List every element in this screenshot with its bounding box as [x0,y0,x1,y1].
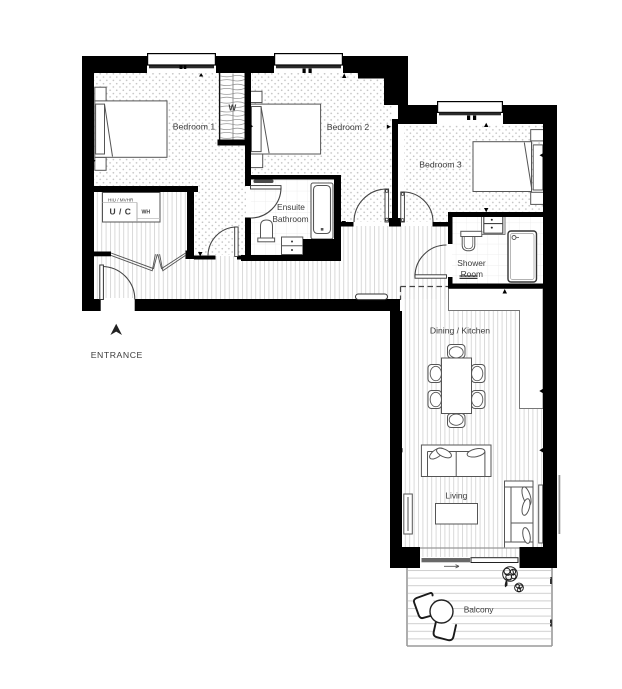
svg-text:WH: WH [142,210,151,216]
svg-text:Ensuite: Ensuite [277,202,305,212]
svg-text:ENTRANCE: ENTRANCE [91,350,143,360]
svg-text:Living: Living [445,491,467,501]
svg-text:Bedroom 3: Bedroom 3 [419,160,462,170]
svg-text:W: W [229,104,237,113]
svg-text:Bedroom 2: Bedroom 2 [327,122,370,132]
svg-text:Bathroom: Bathroom [272,214,308,224]
svg-text:HIU / MVHR: HIU / MVHR [108,198,134,203]
svg-text:Bedroom 1: Bedroom 1 [173,122,216,132]
svg-text:Shower: Shower [457,258,486,268]
svg-text:Dining / Kitchen: Dining / Kitchen [430,326,490,336]
svg-text:Room: Room [461,269,483,279]
svg-text:U / C: U / C [110,207,132,217]
svg-text:Balcony: Balcony [464,604,495,614]
